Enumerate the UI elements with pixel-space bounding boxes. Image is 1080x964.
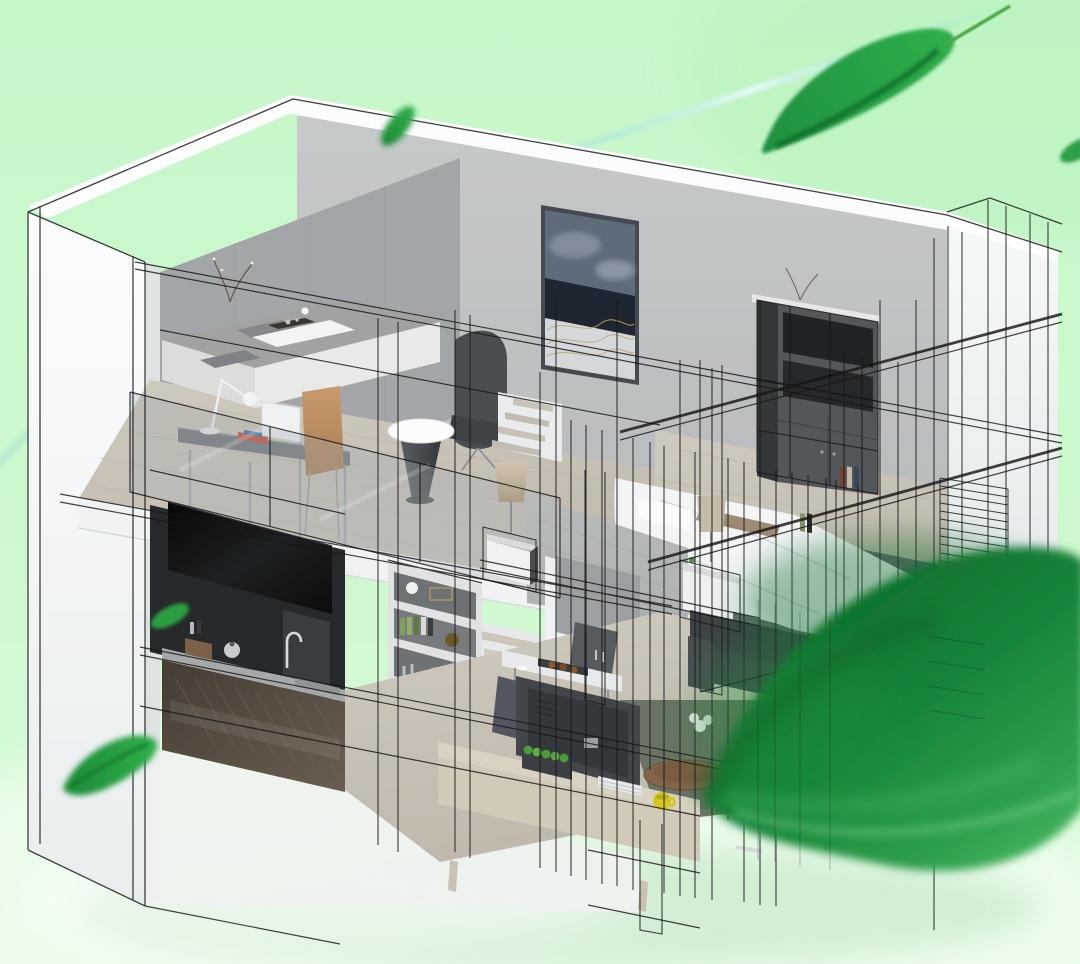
fruit: [560, 664, 567, 671]
teapot: [286, 320, 291, 325]
book-spine: [414, 616, 419, 635]
book-spine: [800, 513, 805, 532]
blossom: [221, 269, 224, 272]
apartment-scene-svg: [0, 0, 1080, 964]
moss: [560, 754, 569, 763]
left-wall-outer: [28, 212, 145, 906]
book-spine: [847, 466, 852, 488]
book-spine: [400, 618, 405, 635]
bottle: [197, 620, 201, 634]
round-gold-object: [445, 633, 459, 647]
lamp-head: [243, 392, 257, 406]
fruit: [549, 662, 556, 669]
bottle: [190, 622, 194, 634]
paper-cup: [301, 307, 308, 314]
moss: [524, 746, 533, 755]
mug-opening: [655, 794, 668, 799]
table-lamp-shade: [495, 462, 528, 502]
book-spine: [421, 617, 426, 635]
blossom: [213, 258, 216, 261]
coral-decor: [406, 582, 418, 594]
book-spine: [407, 617, 412, 635]
leaf-bottom-right: [695, 535, 1080, 871]
kitchen: [150, 502, 345, 792]
art-cloud: [549, 232, 601, 258]
moss: [551, 752, 560, 761]
screenshot-root: 3D isometric cutaway render of a two-sto…: [0, 0, 1080, 964]
blossom: [251, 262, 254, 265]
green-books: [400, 616, 433, 636]
door-handle: [820, 450, 823, 453]
teacup: [295, 318, 298, 321]
plate: [517, 666, 527, 671]
moss: [542, 750, 551, 759]
art-cloud: [595, 260, 635, 280]
book-spine: [428, 618, 433, 636]
fruit: [571, 667, 578, 674]
kettle-lid: [230, 642, 235, 647]
door-handle: [832, 452, 835, 455]
